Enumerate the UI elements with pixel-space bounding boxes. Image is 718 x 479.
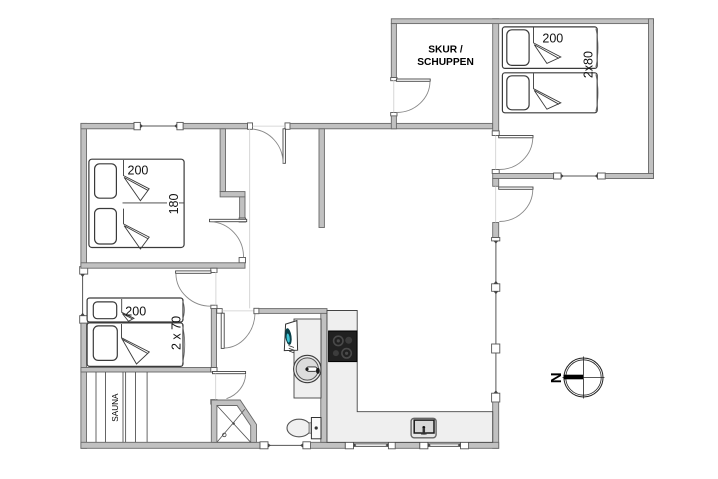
svg-text:2 x 70: 2 x 70 xyxy=(169,316,183,350)
svg-text:200: 200 xyxy=(128,164,149,178)
svg-text:SKUR /: SKUR / xyxy=(428,45,463,56)
svg-text:SCHUPPEN: SCHUPPEN xyxy=(417,57,474,68)
svg-text:200: 200 xyxy=(542,32,563,46)
svg-text:SAUNA: SAUNA xyxy=(111,393,120,422)
svg-text:180: 180 xyxy=(167,194,181,215)
svg-text:200: 200 xyxy=(125,305,146,319)
svg-text:N: N xyxy=(548,372,565,383)
svg-text:2x80: 2x80 xyxy=(581,51,595,78)
